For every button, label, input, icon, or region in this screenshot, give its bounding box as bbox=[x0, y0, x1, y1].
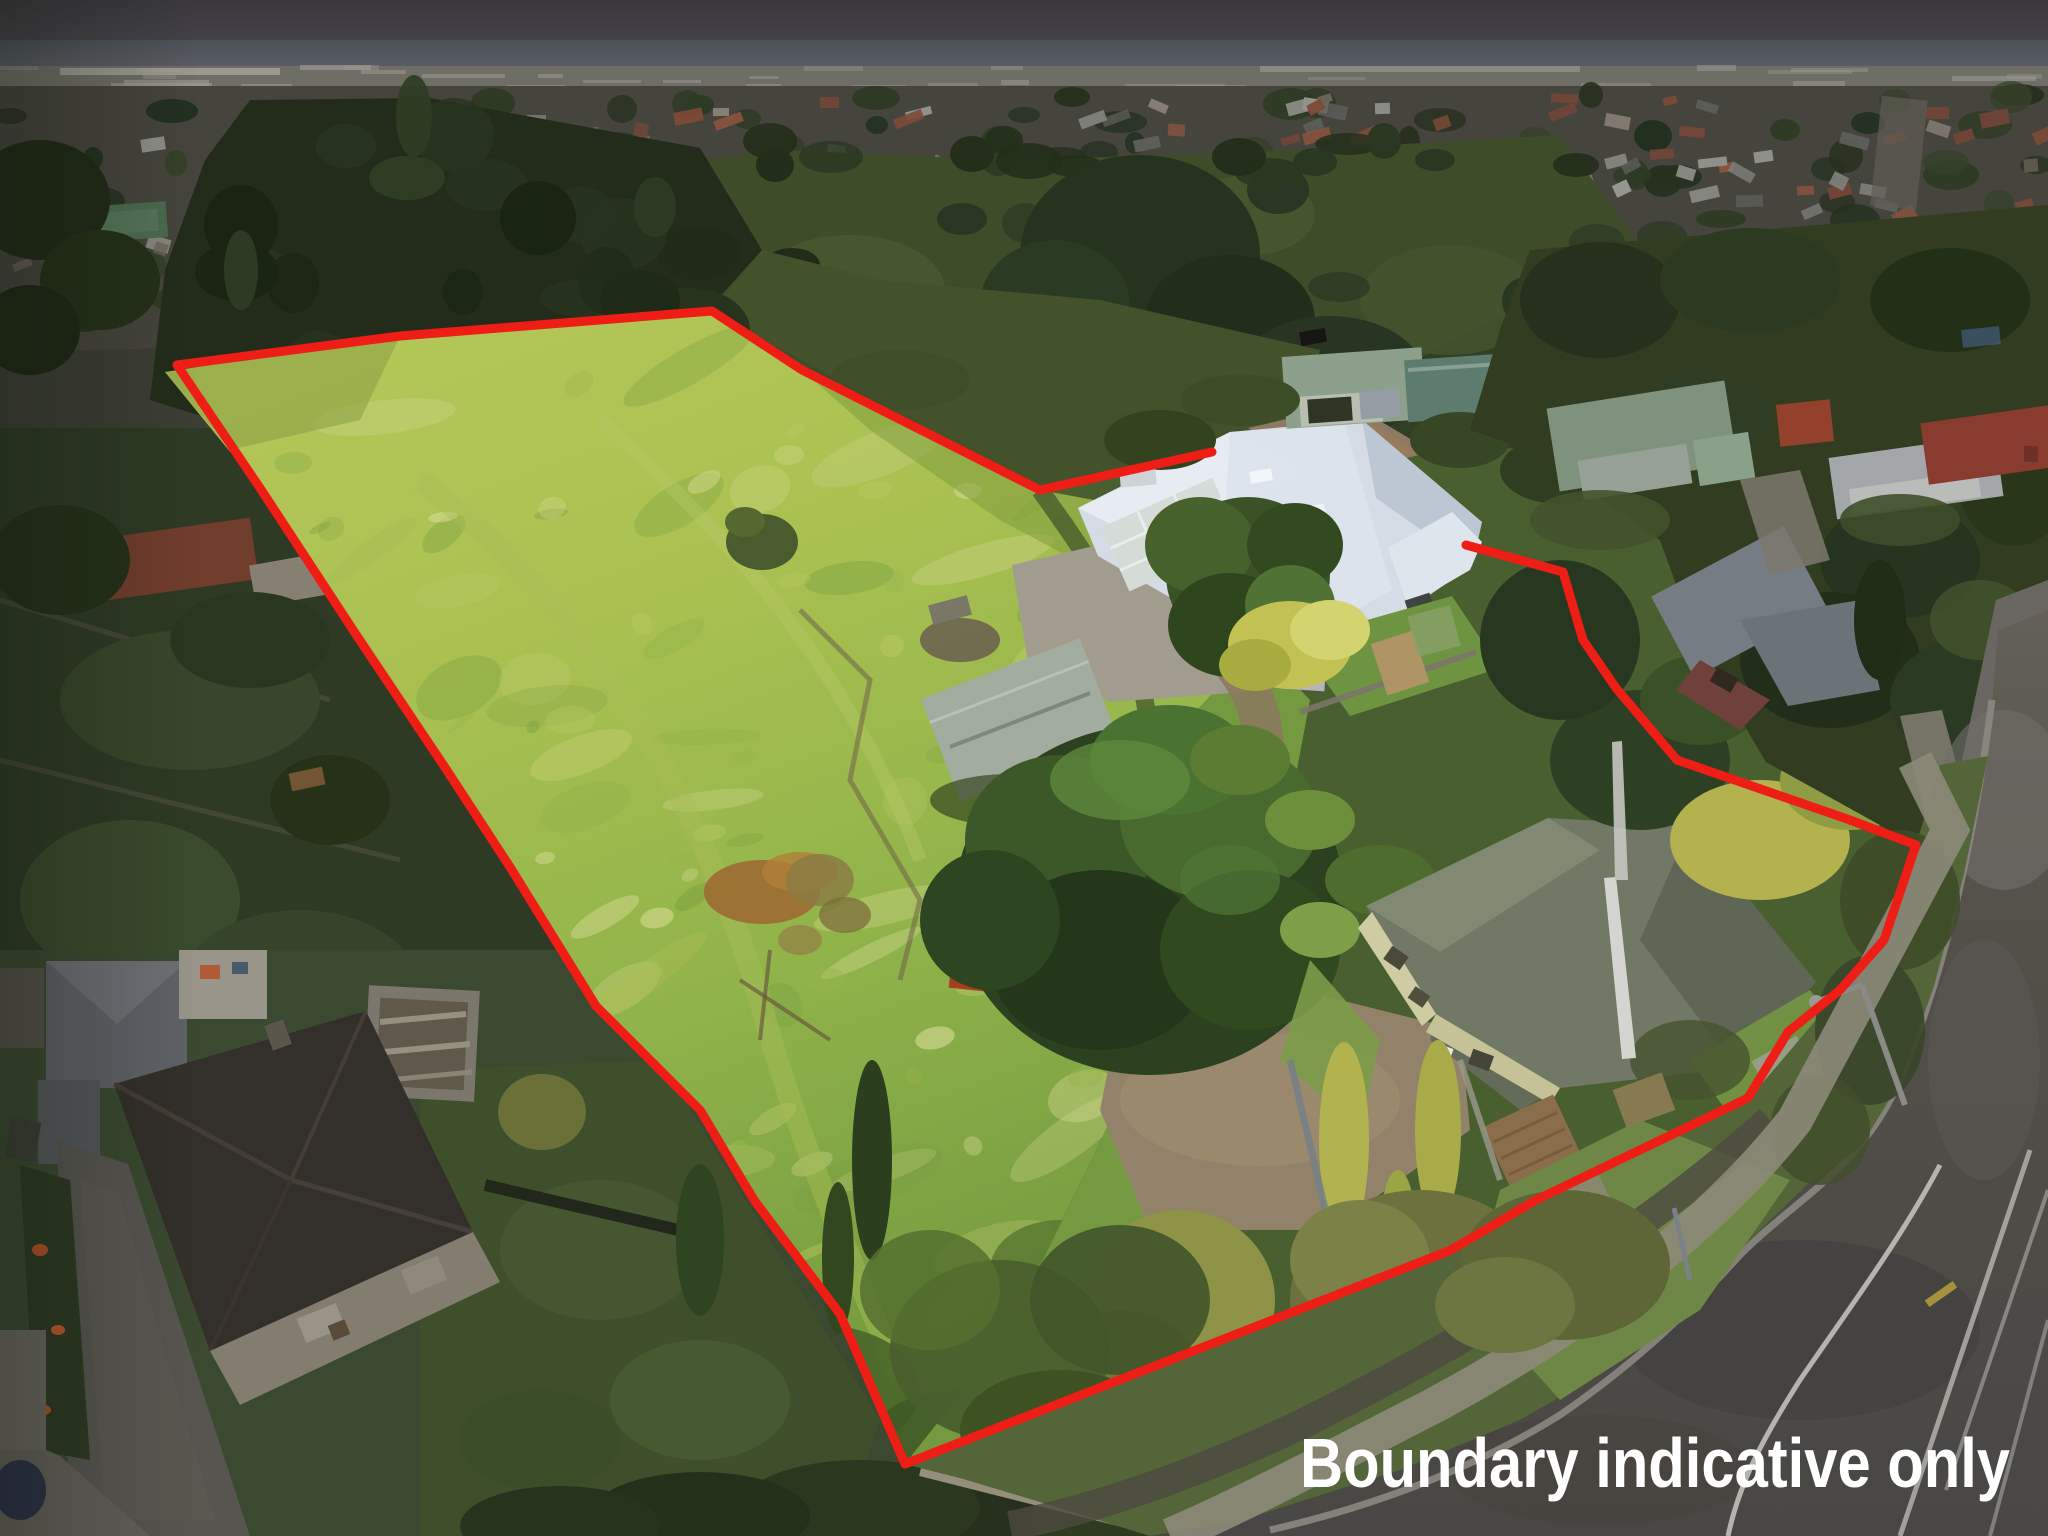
svg-text:Boundary indicative only: Boundary indicative only bbox=[1300, 1424, 2010, 1502]
